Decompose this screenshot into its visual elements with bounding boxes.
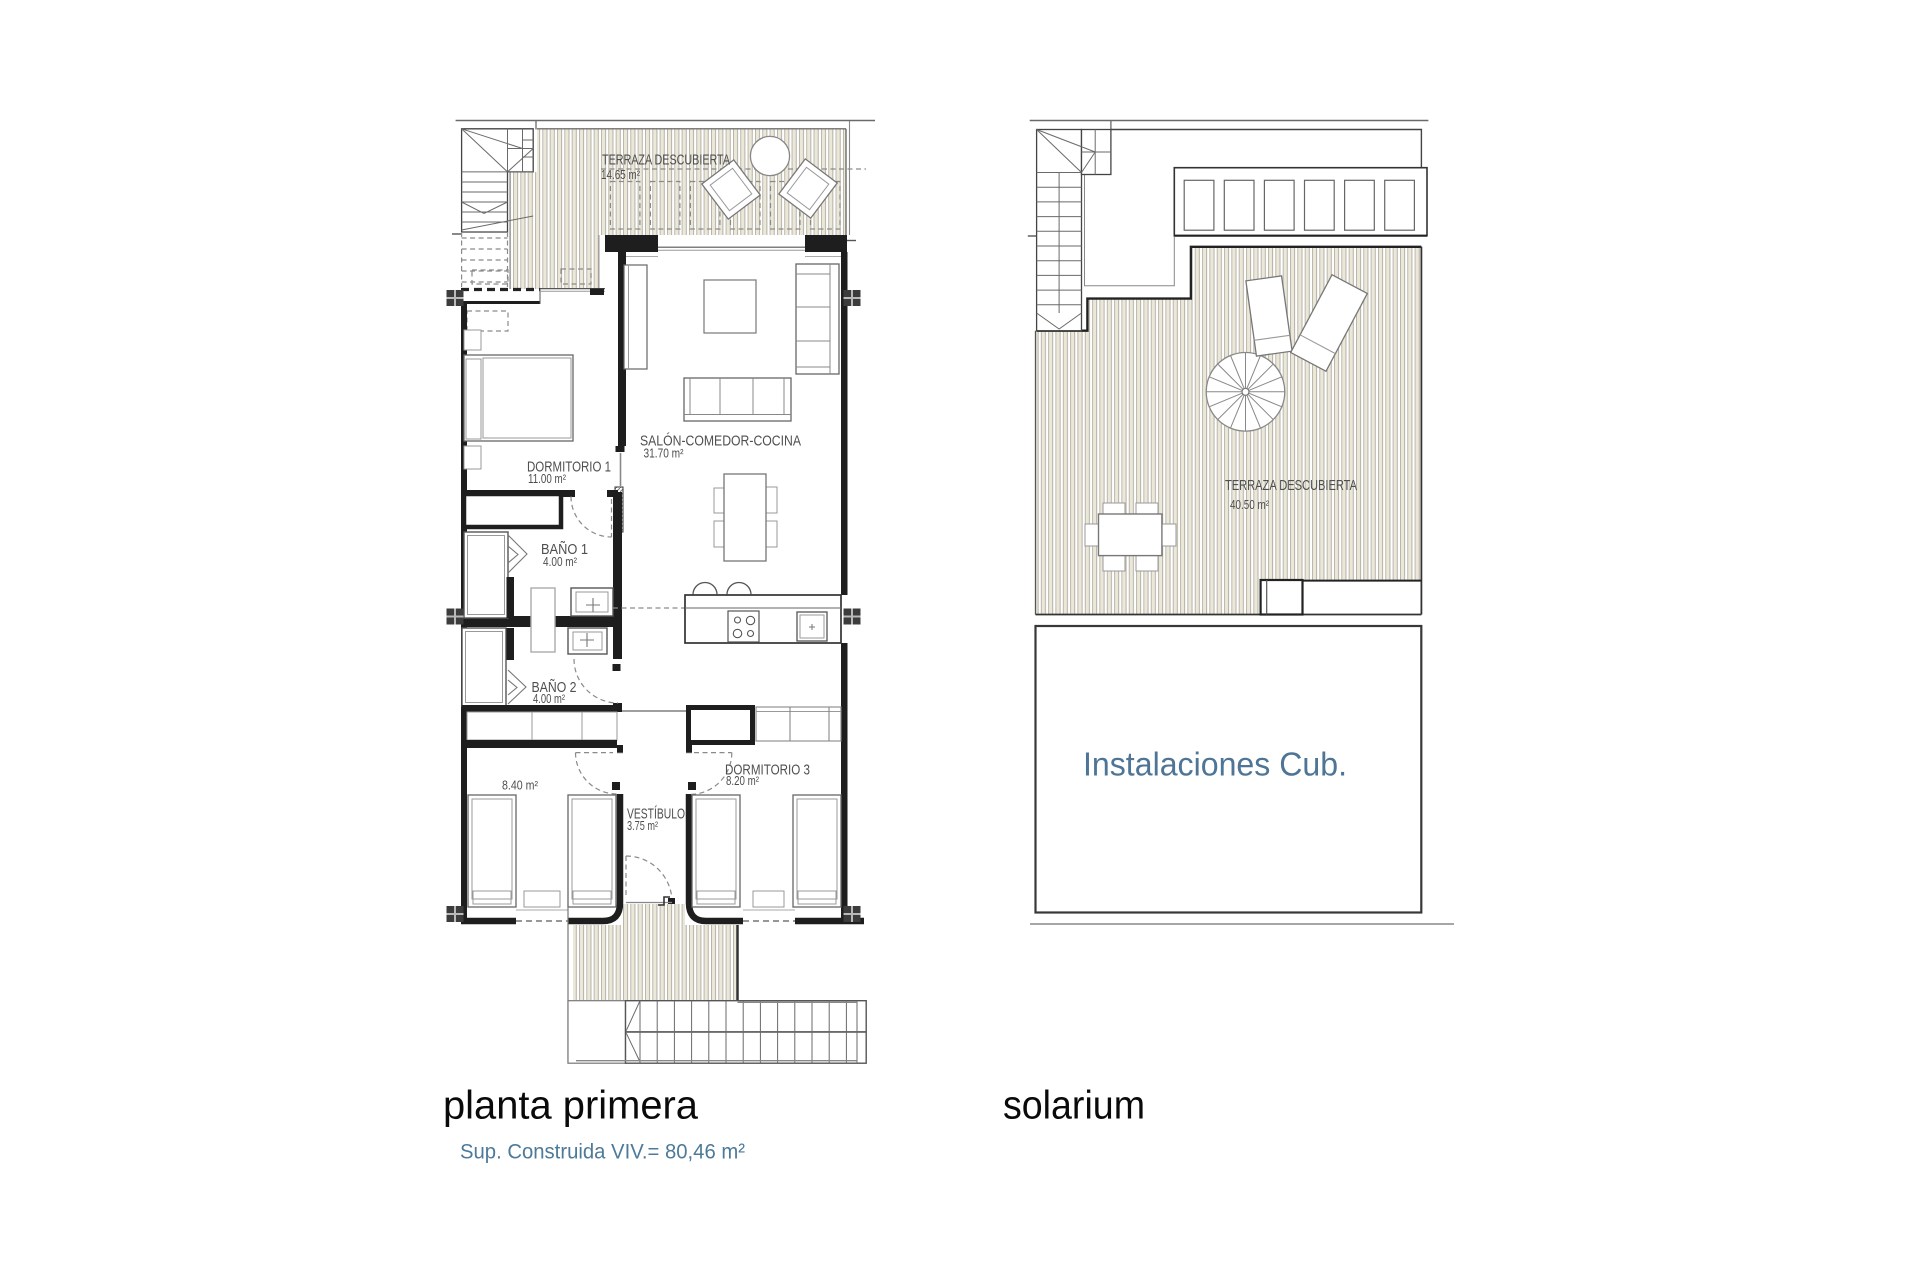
svg-text:solarium: solarium: [1003, 1084, 1145, 1128]
svg-text:11.00 m²: 11.00 m²: [528, 471, 567, 486]
svg-text:8.40 m²: 8.40 m²: [502, 778, 539, 793]
svg-text:31.70 m²: 31.70 m²: [644, 446, 685, 461]
svg-text:3.75 m²: 3.75 m²: [627, 818, 658, 833]
svg-text:4.00 m²: 4.00 m²: [533, 691, 565, 706]
svg-text:TERRAZA DESCUBIERTA: TERRAZA DESCUBIERTA: [602, 152, 730, 169]
svg-text:14.65 m²: 14.65 m²: [601, 167, 641, 182]
svg-text:Instalaciones Cub.: Instalaciones Cub.: [1083, 747, 1347, 784]
svg-text:4.00 m²: 4.00 m²: [543, 554, 578, 569]
svg-text:40.50 m²: 40.50 m²: [1230, 497, 1270, 512]
svg-text:TERRAZA DESCUBIERTA: TERRAZA DESCUBIERTA: [1225, 477, 1357, 494]
svg-text:8.20 m²: 8.20 m²: [726, 773, 759, 788]
svg-text:Sup. Construida VIV.= 80,46 m²: Sup. Construida VIV.= 80,46 m²: [460, 1141, 745, 1164]
svg-text:planta primera: planta primera: [443, 1084, 699, 1128]
